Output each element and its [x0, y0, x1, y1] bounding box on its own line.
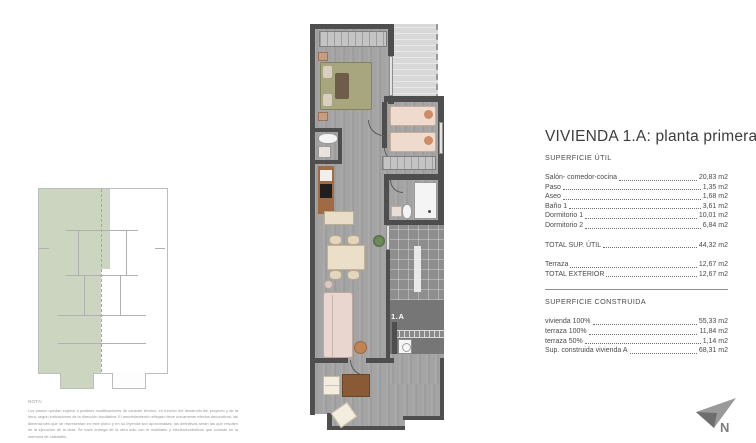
wall-entry-left: [314, 358, 348, 363]
single-bed-1: [390, 106, 436, 126]
superficie-util-rows: Salón- comedor-cocina20,83 m2 Paso1,35 m…: [545, 173, 728, 231]
area-row: Aseo1,68 m2: [545, 192, 728, 202]
row-label: TOTAL EXTERIOR: [545, 270, 604, 280]
area-row: Dormitorio 26,84 m2: [545, 221, 728, 231]
wall-bottom-left: [327, 426, 405, 430]
row-value: 1,14 m2: [703, 337, 728, 347]
total-util-row: TOTAL SUP. ÚTIL44,32 m2: [545, 241, 728, 251]
window-dorm1-terrace: [389, 56, 393, 96]
note-block: NOTA: Los planos quedan sujetos a posibl…: [28, 399, 238, 440]
dot-leader: [603, 247, 697, 248]
note-heading: NOTA:: [28, 399, 238, 404]
dot-leader: [630, 353, 697, 354]
area-row: Sup. construida vivienda A68,31 m2: [545, 346, 728, 356]
kitchen-sink: [320, 170, 332, 181]
dining-chair-3: [329, 270, 342, 280]
row-value: 6,84 m2: [703, 221, 728, 231]
dining-chair-4: [347, 270, 360, 280]
row-label: Sup. construida vivienda A: [545, 346, 628, 356]
note-body: Los planos quedan sujetos a posibles mod…: [28, 408, 238, 440]
row-value: 10,01 m2: [699, 211, 728, 221]
row-value: 20,83 m2: [699, 173, 728, 183]
row-value: 1,35 m2: [703, 183, 728, 193]
dot-leader: [589, 334, 698, 335]
wardrobe-dorm1: [319, 31, 387, 47]
key-plan-bottom-tab-left: [60, 373, 94, 389]
dot-leader: [585, 343, 701, 344]
row-value: 11,84 m2: [699, 327, 728, 337]
wall-bottom-right-lower: [403, 416, 444, 420]
wall-bath-right: [438, 174, 444, 225]
row-value: 55,33 m2: [699, 317, 728, 327]
row-value: 44,32 m2: [699, 241, 728, 251]
floor-plan: 1.A: [310, 24, 450, 434]
toilet: [402, 204, 412, 219]
double-bed: [320, 62, 372, 110]
dot-leader: [619, 180, 697, 181]
dot-leader: [606, 276, 696, 277]
north-compass: N: [694, 396, 738, 440]
unit-label: 1.A: [391, 312, 404, 321]
dot-leader: [563, 199, 701, 200]
superficie-construida-rows: vivienda 100%55,33 m2 terraza 100%11,84 …: [545, 317, 728, 355]
wall-bath-left: [384, 174, 389, 224]
wall-utility-nook: [392, 322, 397, 354]
total-exterior-row: TOTAL EXTERIOR12,67 m2: [545, 270, 728, 280]
row-label: Terraza: [545, 260, 568, 270]
divider-line: [545, 289, 728, 290]
aseo-toilet: [318, 146, 331, 158]
row-label: Salón- comedor-cocina: [545, 173, 617, 183]
dot-leader: [569, 208, 701, 209]
key-plan: [38, 188, 168, 390]
area-row: Dormitorio 110,01 m2: [545, 211, 728, 221]
washing-machine: [398, 339, 412, 354]
row-value: 68,31 m2: [699, 346, 728, 356]
upper-terrace: [390, 24, 438, 100]
single-bed-2: [390, 132, 436, 152]
wardrobe-dorm2: [382, 156, 436, 170]
wall-entry-right: [366, 358, 394, 363]
kitchen-cooktop: [320, 184, 332, 198]
dining-table: [327, 245, 365, 270]
kitchen-island: [324, 211, 354, 225]
area-row: Salón- comedor-cocina20,83 m2: [545, 173, 728, 183]
row-label: Paso: [545, 183, 561, 193]
row-label: TOTAL SUP. ÚTIL: [545, 241, 601, 251]
dining-chair-1: [329, 235, 342, 245]
row-label: vivienda 100%: [545, 317, 591, 327]
superficie-construida-heading: SUPERFICIE CONSTRUIDA: [545, 297, 728, 306]
nightstand-1: [318, 52, 328, 61]
dot-leader: [563, 189, 701, 190]
wall-bath-bottom: [384, 220, 444, 225]
dot-leader: [585, 218, 697, 219]
sideboard: [342, 374, 370, 397]
row-value: 12,67 m2: [699, 270, 728, 280]
dot-leader: [570, 267, 696, 268]
aseo-sink: [318, 133, 338, 144]
info-panel: VIVIENDA 1.A: planta primera SUPERFICIE …: [545, 128, 728, 356]
key-plan-bottom-tab-right: [112, 373, 146, 389]
terrace-planter: [414, 246, 421, 292]
area-row: Terraza12,67 m2: [545, 260, 728, 270]
wall-dorm2-top: [384, 96, 444, 102]
area-row: terraza 50%1,14 m2: [545, 337, 728, 347]
area-row: terraza 100%11,84 m2: [545, 327, 728, 337]
wall-dorm1-right-upper: [388, 24, 394, 56]
row-value: 12,67 m2: [699, 260, 728, 270]
row-label: terraza 50%: [545, 337, 583, 347]
row-label: Dormitorio 2: [545, 221, 583, 231]
area-row: vivienda 100%55,33 m2: [545, 317, 728, 327]
area-row: Baño 13,61 m2: [545, 202, 728, 212]
row-label: Baño 1: [545, 202, 567, 212]
row-label: Dormitorio 1: [545, 211, 583, 221]
north-arrow-icon: [694, 396, 738, 430]
plant: [373, 235, 385, 247]
wall-bottom-right: [440, 358, 444, 420]
wall-aseo-bottom: [314, 160, 342, 164]
row-value: 1,68 m2: [703, 192, 728, 202]
entry-armchair: [323, 376, 340, 395]
pouf: [354, 341, 367, 354]
key-plan-highlight-extension: [101, 189, 110, 269]
row-label: terraza 100%: [545, 327, 587, 337]
shower: [414, 182, 437, 219]
dining-chair-2: [347, 235, 360, 245]
wall-top: [312, 24, 394, 29]
page-title: VIVIENDA 1.A: planta primera: [545, 128, 728, 146]
wall-living-terrace: [386, 250, 390, 358]
dot-leader: [585, 228, 701, 229]
window-dorm2: [439, 122, 443, 154]
side-table: [324, 280, 333, 289]
sofa: [323, 292, 353, 358]
wall-aseo-right: [338, 128, 342, 164]
dot-leader: [593, 324, 697, 325]
window-living-terrace: [386, 225, 390, 250]
compass-n-label: N: [720, 420, 729, 435]
area-row: Paso1,35 m2: [545, 183, 728, 193]
key-plan-party-wall: [101, 189, 102, 372]
bathroom-sink: [391, 206, 402, 217]
utility-floor: [390, 354, 444, 384]
row-label: Aseo: [545, 192, 561, 202]
nightstand-2: [318, 112, 328, 121]
row-value: 3,61 m2: [703, 202, 728, 212]
shower-drain: [428, 210, 431, 213]
stair-treads: [394, 330, 444, 338]
wall-left: [310, 24, 315, 415]
superficie-util-heading: SUPERFICIE ÚTIL: [545, 153, 728, 162]
